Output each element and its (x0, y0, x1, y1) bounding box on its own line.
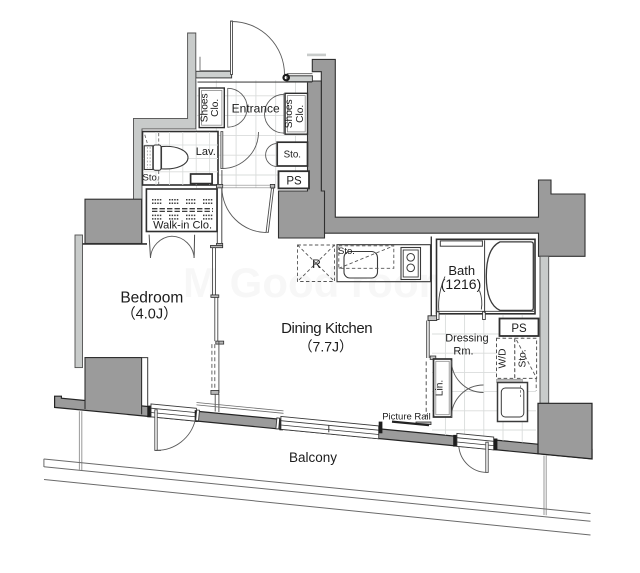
svg-text:Shoes: Shoes (284, 99, 295, 128)
svg-text:Dining Kitchen: Dining Kitchen (281, 320, 372, 337)
svg-text:Walk-in Clo.: Walk-in Clo. (153, 219, 212, 231)
svg-text:Sto.: Sto. (284, 150, 301, 161)
svg-text:Picture Rail: Picture Rail (382, 411, 431, 422)
svg-text:Lin.: Lin. (435, 380, 446, 396)
svg-text:Sto.: Sto. (143, 172, 160, 183)
svg-text:PS: PS (511, 323, 527, 335)
svg-text:Bedroom: Bedroom (120, 290, 183, 307)
svg-text:Entrance: Entrance (232, 102, 280, 116)
svg-text:Rm.: Rm. (453, 346, 473, 358)
svg-text:PS: PS (286, 176, 302, 188)
svg-text:Dressing: Dressing (445, 332, 488, 344)
svg-text:Shoes: Shoes (199, 93, 210, 122)
svg-text:Balcony: Balcony (289, 450, 337, 465)
svg-text:Clo.: Clo. (295, 105, 306, 123)
svg-text:W/D: W/D (498, 348, 509, 368)
svg-text:Sto.: Sto. (338, 246, 355, 257)
svg-text:(1216): (1216) (441, 276, 481, 292)
svg-text:Clo.: Clo. (210, 99, 221, 117)
svg-text:R: R (312, 257, 321, 271)
svg-text:（7.7J）: （7.7J） (299, 339, 353, 355)
svg-text:Lav.: Lav. (196, 146, 216, 158)
svg-text:（4.0J）: （4.0J） (121, 306, 177, 323)
